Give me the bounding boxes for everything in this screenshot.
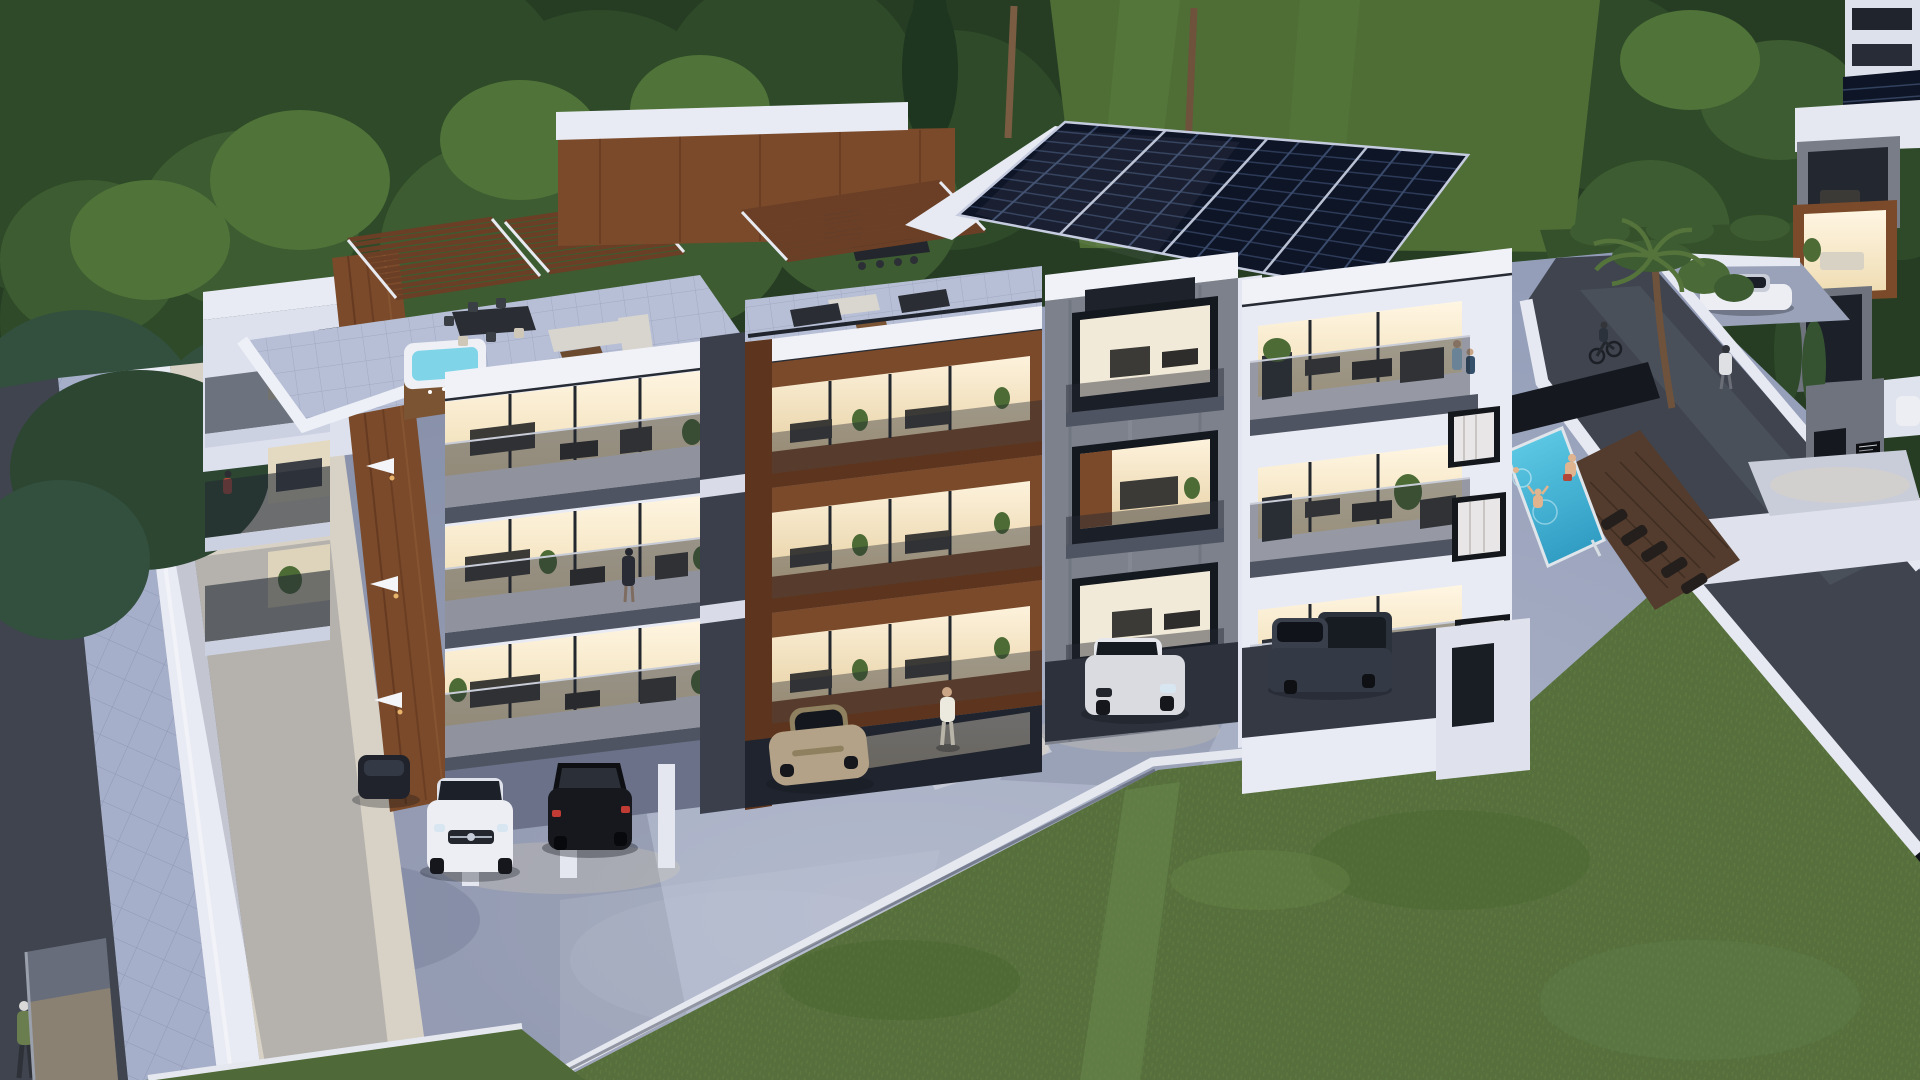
loggia-middle-wood <box>1066 430 1224 559</box>
middle-balustrades <box>745 400 1042 741</box>
car-pickup <box>1268 612 1392 700</box>
entry-door <box>1452 643 1494 727</box>
right-block <box>1242 248 1530 794</box>
recess-slot <box>700 332 745 814</box>
gate-pillar <box>26 938 118 1080</box>
architectural-render <box>0 0 1920 1080</box>
neighbour-parked-car <box>1896 396 1920 426</box>
child-swimmer <box>1513 467 1519 473</box>
car-dark-partial <box>352 755 420 808</box>
render-canvas <box>0 0 1920 1080</box>
loggia-top <box>1066 296 1224 427</box>
